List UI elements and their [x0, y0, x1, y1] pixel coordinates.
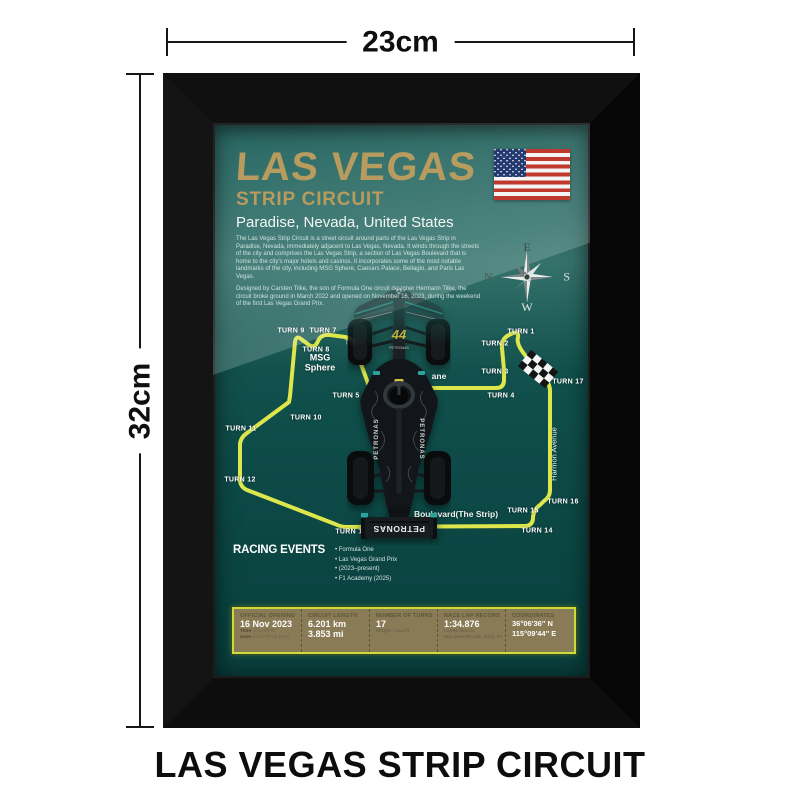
info-table-column: NUMBER OF TURNS176Right - 11Left [370, 609, 438, 652]
car-nose-sponsor: PETRONAS [389, 346, 409, 350]
width-dimension-label: 23cm [346, 26, 455, 59]
info-table-column: CIRCUIT LENGTH6.201 km3.853 mi [302, 609, 370, 652]
map-turn-label: TURN 12 [224, 477, 255, 484]
map-turn-label: TURN 9 [277, 328, 304, 335]
poster-title: LAS VEGAS [235, 147, 488, 187]
map-turn-label: TURN 15 [507, 508, 538, 515]
height-dimension-label: 32cm [124, 348, 157, 453]
map-turn-label: TURN 11 [226, 426, 257, 433]
us-flag-canton [494, 149, 526, 177]
racing-event-item: (2023–present) [335, 565, 397, 575]
map-turn-label: TURN 17 [552, 379, 583, 386]
circuit-info-table: OFFICIAL OPENING16 Nov 2023Time UTC-08:0… [232, 607, 576, 654]
map-turn-label: TURN 1 [507, 329, 534, 336]
info-column-value: McLaren MCL38, 2024, F1 [444, 635, 500, 641]
compass-north-label: N [484, 270, 493, 285]
compass-south-label: S [563, 270, 570, 285]
map-turn-label: TURN 3 [481, 369, 508, 376]
compass-west-label: W [521, 300, 532, 315]
racing-events-section: RACING EVENTS Formula OneLas Vegas Grand… [233, 544, 397, 584]
car-rear-wing-sponsor: PETRONAS [373, 524, 425, 534]
info-column-value: 3.853 mi [308, 629, 364, 639]
racing-event-item: Formula One [335, 546, 397, 556]
racing-event-item: F1 Academy (2025) [335, 575, 397, 585]
product-caption: LAS VEGAS STRIP CIRCUIT [0, 744, 800, 786]
compass-east-label: E [523, 240, 530, 255]
car-sidepod-sponsor-right: PETRONAS [418, 418, 424, 459]
car-mirror [418, 371, 425, 375]
poster-header: LAS VEGAS STRIP CIRCUIT Paradise, Nevada… [236, 147, 486, 309]
map-street-label: Harmon Avenue [550, 427, 559, 481]
info-column-value: 17 [376, 619, 432, 629]
info-column-value: 6.201 km [308, 619, 364, 629]
info-table-column: COORDINATES36°06′36″ N115°09′44″ E [506, 609, 574, 652]
map-turn-label: TURN 16 [547, 499, 578, 506]
map-turn-label: TURN 7 [309, 328, 336, 335]
poster-history-paragraph: Designed by Carsten Tilke, the son of Fo… [236, 286, 482, 309]
car-mirror [373, 371, 380, 375]
racing-events-heading: RACING EVENTS [233, 544, 325, 584]
compass-rose-icon: E N S W [497, 247, 557, 307]
poster-location: Paradise, Nevada, United States [236, 214, 486, 231]
car-number-nose: 44 [391, 327, 407, 342]
map-turn-label: TURN 2 [481, 341, 508, 348]
dimension-tick [126, 726, 154, 728]
poster-subtitle: STRIP CIRCUIT [236, 189, 486, 211]
map-landmark-label: MSGSphere [305, 353, 336, 374]
compass-star [497, 247, 557, 307]
map-turn-label: TURN 4 [487, 393, 514, 400]
info-column-value: 115°09′44″ E [512, 629, 569, 639]
circuit-poster: TURN 1TURN 2TURN 3TURN 4TURN 5TURN 6TURN… [213, 123, 590, 678]
racing-events-list: Formula OneLas Vegas Grand Prix(2023–pre… [335, 546, 397, 584]
info-column-value: 6Right - 11Left [376, 629, 432, 635]
info-column-value: 16 Nov 2023 [240, 619, 296, 629]
racing-event-item: Las Vegas Grand Prix [335, 556, 397, 566]
poster-intro-paragraph: The Las Vegas Strip Circuit is a street … [236, 236, 482, 281]
width-dimension: 23cm [166, 28, 635, 58]
us-flag-icon [494, 149, 570, 200]
map-turn-label: TURN 10 [290, 415, 321, 422]
info-table-column: RACE LAP RECORD1:34.876Lando Norris,McLa… [438, 609, 506, 652]
height-dimension: 32cm [126, 73, 156, 728]
f1-model-car: 44 PETRONAS [347, 281, 451, 545]
info-column-value: 36°06′36″ N [512, 619, 569, 629]
picture-frame: TURN 1TURN 2TURN 3TURN 4TURN 5TURN 6TURN… [163, 73, 640, 728]
info-table-column: OFFICIAL OPENING16 Nov 2023Time UTC-08:0… [234, 609, 302, 652]
dimension-tick [633, 28, 635, 56]
car-sidepod-sponsor-left: PETRONAS [374, 418, 380, 459]
info-column-subvalue: zone (UTC-07:00 DST) [240, 635, 296, 641]
map-turn-label: TURN 14 [521, 528, 552, 535]
info-column-value: 1:34.876 [444, 619, 500, 629]
